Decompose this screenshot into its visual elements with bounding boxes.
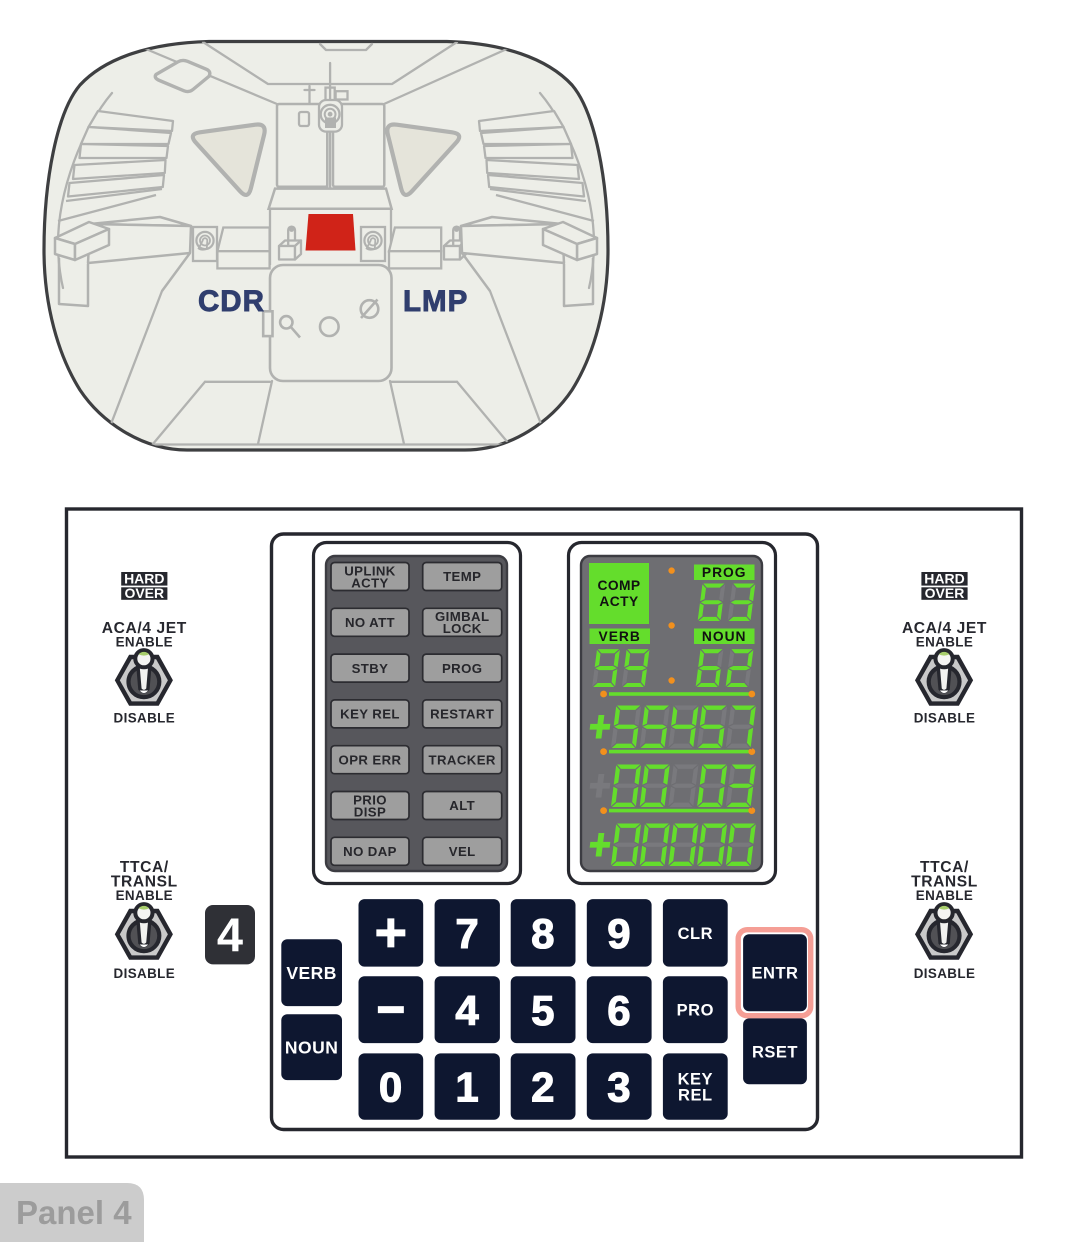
svg-text:4: 4 [455,987,479,1034]
svg-text:DISP: DISP [354,804,386,819]
svg-text:DISABLE: DISABLE [914,711,976,726]
svg-text:ENABLE: ENABLE [916,635,973,650]
svg-text:6: 6 [607,987,631,1034]
svg-text:ACTY: ACTY [351,575,389,590]
svg-text:OVER: OVER [124,585,164,601]
svg-text:VERB: VERB [286,963,337,983]
svg-text:DISABLE: DISABLE [114,711,176,726]
svg-text:4: 4 [217,908,243,961]
svg-text:OPR ERR: OPR ERR [339,752,402,767]
svg-text:COMP: COMP [598,578,641,593]
svg-text:LMP: LMP [403,285,468,318]
svg-text:5: 5 [531,987,555,1034]
svg-text:7: 7 [455,910,479,957]
svg-text:0: 0 [379,1064,403,1111]
svg-text:9: 9 [607,910,631,957]
svg-text:3: 3 [607,1064,631,1111]
svg-text:ACTY: ACTY [599,594,638,609]
svg-text:Panel 4: Panel 4 [16,1194,132,1231]
svg-text:ENABLE: ENABLE [116,888,173,903]
svg-text:8: 8 [531,910,555,957]
svg-text:ENABLE: ENABLE [116,635,173,650]
svg-text:TEMP: TEMP [443,569,481,584]
svg-text:TRACKER: TRACKER [429,752,496,767]
svg-text:KEY REL: KEY REL [340,707,400,722]
svg-text:PRO: PRO [677,1002,714,1020]
svg-text:ENABLE: ENABLE [916,888,973,903]
svg-text:ENTR: ENTR [752,965,799,983]
svg-text:ALT: ALT [449,798,475,813]
svg-text:VEL: VEL [449,844,476,859]
svg-text:RESTART: RESTART [430,707,494,722]
svg-text:DISABLE: DISABLE [914,966,976,981]
svg-text:STBY: STBY [352,661,389,676]
svg-text:RSET: RSET [752,1043,798,1061]
svg-text:DISABLE: DISABLE [114,966,176,981]
svg-text:OVER: OVER [925,585,965,601]
svg-text:1: 1 [455,1064,479,1111]
svg-text:2: 2 [531,1064,555,1111]
svg-text:CLR: CLR [678,925,713,943]
svg-text:NO ATT: NO ATT [345,615,395,630]
svg-text:NOUN: NOUN [285,1038,339,1058]
svg-text:NOUN: NOUN [702,629,747,644]
svg-text:LOCK: LOCK [443,621,482,636]
svg-text:NO DAP: NO DAP [343,844,397,859]
svg-text:PROG: PROG [702,565,747,580]
svg-text:VERB: VERB [599,629,641,644]
svg-text:PROG: PROG [442,661,482,676]
svg-text:CDR: CDR [198,285,265,318]
svg-text:REL: REL [678,1086,713,1104]
